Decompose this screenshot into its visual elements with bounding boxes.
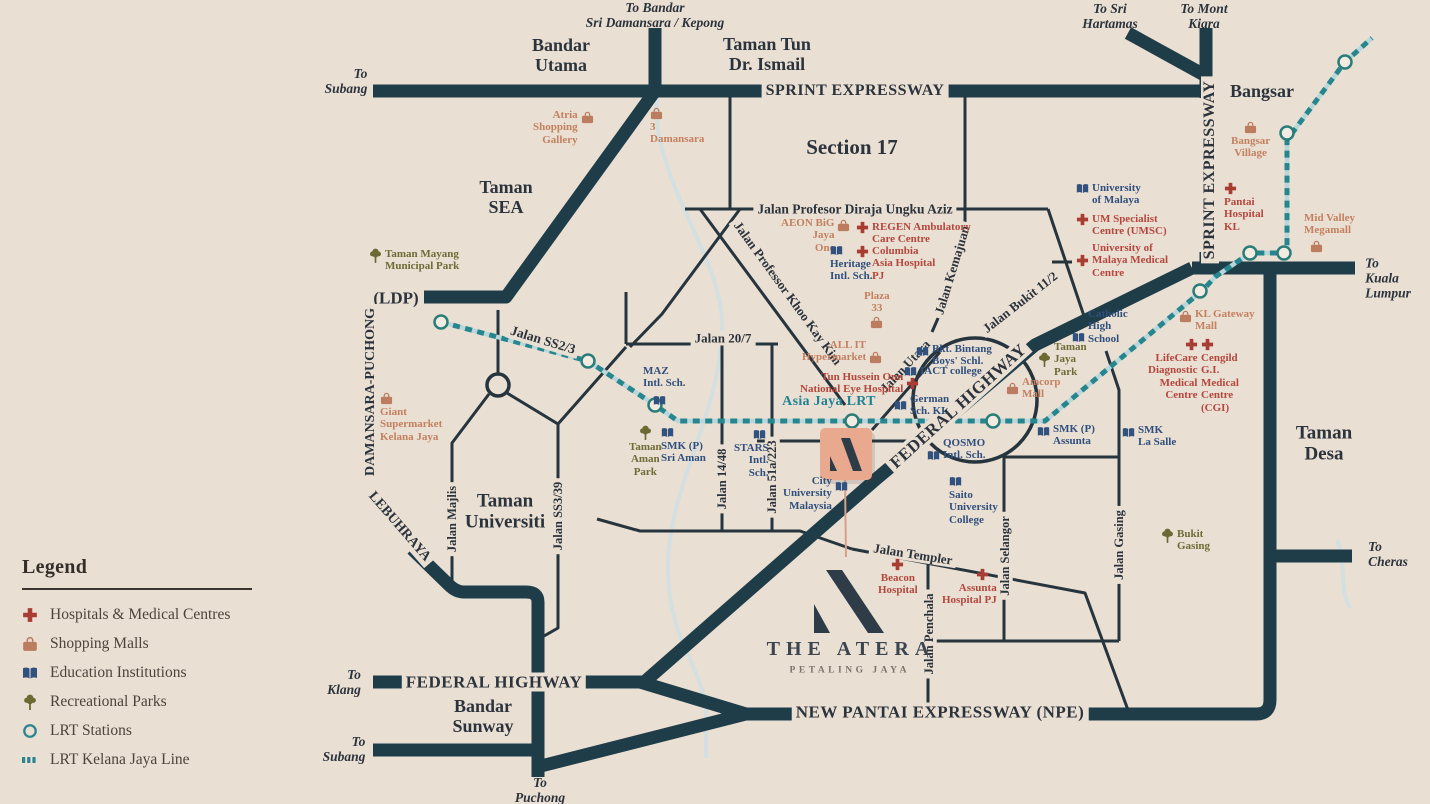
atera-logo-name: THE ATERA: [761, 638, 936, 660]
poi-giant-supermarket: Giant Supermarket Kelana Jaya: [380, 392, 442, 443]
park-icon: [1161, 528, 1174, 543]
hospital-icon: [1076, 254, 1089, 267]
hospital-icon: [22, 607, 38, 623]
road-label-selangor: Jalan Selangor: [998, 512, 1013, 600]
area-taman-tun-dr-ismail: Taman Tun Dr. Ismail: [723, 34, 811, 74]
park-icon: [22, 694, 38, 710]
poi-smk-assunta: SMK (P) Assunta: [1037, 423, 1095, 448]
lrt-label-asia-jaya: Asia Jaya LRT: [782, 394, 876, 410]
road-label-gasing: Jalan Gasing: [1112, 506, 1127, 584]
legend-item-lrt-stations: LRT Stations: [22, 722, 272, 740]
education-icon: [949, 475, 962, 488]
poi-plaza-33: Plaza 33: [864, 290, 890, 329]
poi-all-it-hypermarket: ALL IT Hypermarket: [802, 339, 882, 364]
legend-item-label: Shopping Malls: [50, 635, 149, 653]
shopping-mall-icon: [870, 316, 883, 329]
hospital-icon: [906, 377, 919, 390]
poi-stars-intl-school: STARS Intl. Sch.: [734, 428, 769, 479]
education-icon: [1122, 426, 1135, 439]
hospital-icon: [976, 568, 989, 581]
hospital-icon: [1185, 338, 1198, 351]
legend-item-education: Education Institutions: [22, 664, 272, 682]
park-icon: [639, 425, 652, 440]
poi-taman-aman-park: Taman Aman Park: [629, 425, 662, 478]
hospital-icon: [1076, 213, 1089, 226]
education-icon: [916, 345, 929, 358]
poi-um-specialist-centre: UM Specialist Centre (UMSC): [1076, 213, 1167, 238]
shopping-mall-icon: [837, 219, 850, 232]
road-label-damansara-puchong: DAMANSARA-PUCHONG: [363, 304, 379, 480]
hospital-icon: [891, 558, 904, 571]
education-icon: [653, 394, 666, 407]
education-icon: [1037, 425, 1050, 438]
atera-logo-tagline: PETALING JAYA: [786, 666, 910, 677]
poi-kl-gateway-mall: KL Gateway Mall: [1179, 308, 1255, 333]
education-icon: [1076, 182, 1089, 195]
education-icon: [830, 244, 843, 257]
poi-catholic-high-school: Catholic High School: [1072, 308, 1128, 345]
road-label-majlis: Jalan Majlis: [445, 482, 460, 556]
area-taman-desa: Taman Desa: [1296, 423, 1352, 466]
legend-divider: [22, 588, 252, 590]
direction-to-subang-top: To Subang: [325, 66, 368, 96]
lrt-station-icon: [22, 723, 38, 739]
park-icon: [1038, 352, 1051, 367]
poi-amcorp-mall: Amcorp Mall: [1006, 376, 1061, 401]
shopping-mall-icon: [22, 636, 38, 652]
road-label-ungku-aziz: Jalan Profesor Diraja Ungku Aziz: [753, 201, 956, 217]
area-taman-universiti: Taman Universiti: [465, 491, 545, 534]
area-bandar-sunway: Bandar Sunway: [452, 696, 513, 736]
direction-to-subang-bottom: To Subang: [323, 734, 366, 764]
direction-to-kuala-lumpur: To Kuala Lumpur: [1365, 255, 1411, 300]
education-icon: [904, 365, 917, 378]
poi-atria-shopping-gallery: Atria Shopping Gallery: [533, 109, 594, 146]
legend: Legend Hospitals & Medical Centres Shopp…: [22, 556, 272, 780]
legend-item-label: Recreational Parks: [50, 693, 167, 711]
poi-um-medical-centre: University of Malaya Medical Centre: [1076, 242, 1168, 279]
poi-bukit-gasing: Bukit Gasing: [1161, 528, 1210, 553]
poi-smk-la-salle: SMK La Salle: [1122, 424, 1176, 449]
education-icon: [835, 480, 848, 493]
shopping-mall-icon: [1179, 310, 1192, 323]
poi-smk-sri-aman: SMK (P) Sri Aman: [661, 426, 706, 465]
area-bandar-utama: Bandar Utama: [532, 35, 590, 75]
legend-item-label: LRT Stations: [50, 722, 132, 740]
road-label-bukit-11-2: Jalan Bukit 11/2: [977, 266, 1064, 338]
lrt-line-icon: [22, 754, 38, 766]
legend-title: Legend: [22, 556, 272, 579]
poi-qosmo-intl-school: QOSMO Intl. Sch.: [927, 437, 986, 462]
legend-item-label: Education Institutions: [50, 664, 186, 682]
poi-german-school-kl: German Sch. KL: [894, 393, 949, 418]
road-label-ss2-3: Jalan SS2/3: [505, 322, 581, 359]
road-label-ss3-39: Jalan SS3/39: [551, 478, 566, 554]
legend-item-hospitals: Hospitals & Medical Centres: [22, 606, 272, 624]
education-icon: [894, 399, 907, 412]
shopping-mall-icon: [1310, 240, 1323, 253]
poi-pantai-hospital-kl: Pantai Hospital KL: [1224, 182, 1264, 233]
road-label-federal-bottom: FEDERAL HIGHWAY: [402, 673, 586, 692]
shopping-mall-icon: [869, 351, 882, 364]
poi-bangsar-village: Bangsar Village: [1231, 121, 1270, 160]
park-icon: [369, 248, 382, 263]
poi-regen-ambulatory-care-centre: REGEN Ambulatory Care Centre: [856, 221, 971, 246]
direction-to-puchong: To Puchong: [515, 775, 565, 804]
poi-lifecare-diagnostic: LifeCare Diagnostic Medical Centre: [1148, 338, 1198, 402]
poi-iact-college: IACT college: [904, 365, 982, 378]
education-icon: [661, 426, 674, 439]
road-label-penchala: Jalan Penchala: [922, 590, 937, 679]
education-icon: [927, 449, 940, 462]
direction-to-klang: To Klang: [327, 667, 361, 697]
road-label-sprint-v: SPRINT EXPRESSWAY: [1201, 77, 1219, 264]
road-label-npe: NEW PANTAI EXPRESSWAY (NPE): [792, 703, 1089, 722]
hospital-icon: [1201, 338, 1214, 351]
poi-3-damansara: 3 Damansara: [650, 107, 704, 146]
hospital-icon: [856, 221, 869, 234]
poi-saito-university-college: Saito University College: [949, 475, 998, 526]
education-icon: [753, 428, 766, 441]
poi-heritage-intl-school: Heritage Intl. Sch.: [830, 244, 873, 283]
poi-mid-valley-megamall: Mid Valley Megamall: [1304, 212, 1355, 253]
shopping-mall-icon: [380, 392, 393, 405]
shopping-mall-icon: [650, 107, 663, 120]
direction-to-mont-kiara: To Mont Kiara: [1180, 1, 1227, 31]
legend-item-malls: Shopping Malls: [22, 635, 272, 653]
poi-taman-mayang-park: Taman Mayang Municipal Park: [369, 248, 459, 273]
legend-item-label: Hospitals & Medical Centres: [50, 606, 230, 624]
area-ldp-abbr: (LDP): [373, 288, 418, 307]
direction-to-cheras: To Cheras: [1368, 539, 1408, 569]
area-taman-sea: Taman SEA: [479, 177, 532, 217]
road-label-jalan-14-48: Jalan 14/48: [715, 445, 730, 514]
education-icon: [22, 665, 38, 681]
direction-to-sri-hartamas: To Sri Hartamas: [1082, 1, 1138, 31]
poi-beacon-hospital: Beacon Hospital: [878, 558, 918, 597]
poi-assunta-hospital: Assunta Hospital PJ: [942, 568, 997, 607]
hospital-icon: [1224, 182, 1237, 195]
area-section-17: Section 17: [806, 136, 898, 160]
poi-university-of-malaya: University of Malaya: [1076, 182, 1141, 207]
legend-item-label: LRT Kelana Jaya Line: [50, 751, 190, 769]
legend-item-parks: Recreational Parks: [22, 693, 272, 711]
road-label-lebuhraya: LEBUHRAYA: [362, 486, 436, 568]
shopping-mall-icon: [1244, 121, 1257, 134]
poi-cengild-gi-medical-centre: Cengild G.I. Medical Centre (CGI): [1201, 338, 1239, 414]
poi-city-university-malaysia: City University Malaysia: [783, 475, 848, 512]
location-map: To Bandar Sri Damansara / Kepong To Suba…: [0, 0, 1430, 804]
road-label-jalan-20-7: Jalan 20/7: [691, 331, 756, 346]
legend-item-lrt-line: LRT Kelana Jaya Line: [22, 751, 272, 769]
poi-taman-jaya-park: Taman Jaya Park: [1038, 341, 1087, 378]
road-label-sprint-h: SPRINT EXPRESSWAY: [762, 82, 949, 100]
shopping-mall-icon: [1006, 382, 1019, 395]
shopping-mall-icon: [581, 111, 594, 124]
area-bangsar: Bangsar: [1230, 81, 1294, 101]
poi-maz-intl-school: MAZ Intl. Sch.: [643, 365, 686, 407]
direction-to-kepong: To Bandar Sri Damansara / Kepong: [586, 0, 724, 30]
